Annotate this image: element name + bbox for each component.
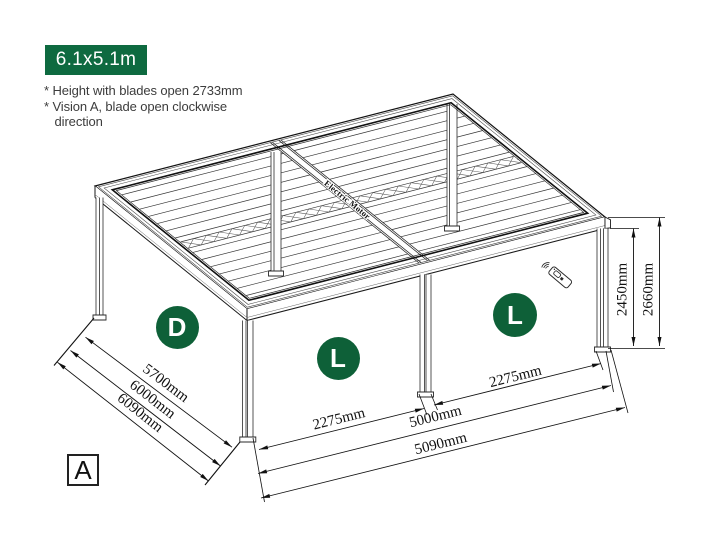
svg-text:2660mm: 2660mm (641, 263, 657, 317)
svg-text:5000mm: 5000mm (408, 403, 464, 432)
svg-text:2450mm: 2450mm (615, 263, 631, 317)
svg-text:2275mm: 2275mm (488, 363, 544, 391)
svg-text:5090mm: 5090mm (413, 430, 469, 458)
